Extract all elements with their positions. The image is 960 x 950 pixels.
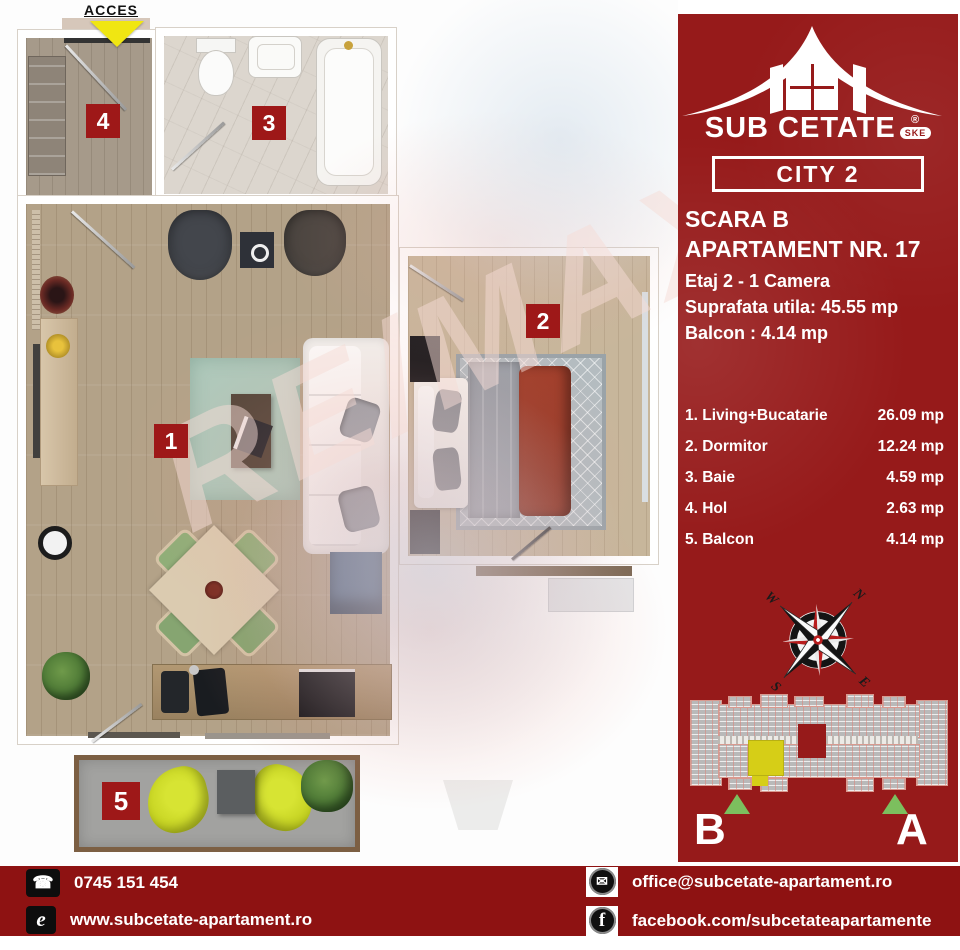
kitchen-faucet <box>189 665 199 675</box>
phone-row[interactable]: ☎ 0745 151 454 <box>26 869 312 897</box>
bedroom-window-sill <box>476 566 632 576</box>
kitchen-island <box>330 552 382 614</box>
decor-gold <box>46 334 70 358</box>
balcony-plant <box>301 760 353 812</box>
logo-shutter-left <box>770 64 783 114</box>
registered-mark: ® <box>911 114 920 126</box>
contact-footer: ☎ 0745 151 454 e www.subcetate-apartamen… <box>0 866 960 936</box>
sink <box>248 36 302 78</box>
bathtub <box>316 38 382 186</box>
compass-rose-icon: N E S W <box>748 570 888 710</box>
balcony-table <box>217 770 255 814</box>
compass-w: W <box>762 588 782 609</box>
room-badge-balcon: 5 <box>102 782 140 820</box>
cooktop <box>299 669 355 717</box>
kitchen-sink <box>193 667 230 716</box>
email-icon: ✉ <box>586 867 618 897</box>
building-footprint: B A <box>690 694 946 862</box>
logo-city2-box: CITY 2 <box>712 156 924 192</box>
sofa <box>303 338 389 554</box>
ske-badge: SKE <box>900 127 932 139</box>
room-label: 3. Baie <box>685 469 735 487</box>
apartment-title: SCARA B APARTAMENT NR. 17 <box>685 204 921 264</box>
website-url: www.subcetate-apartament.ro <box>70 910 312 930</box>
room-badge-living: 1 <box>154 424 188 458</box>
room-area: 12.24 mp <box>878 438 944 456</box>
room-list-row: 1. Living+Bucatarie 26.09 mp <box>678 400 958 431</box>
coffee-table <box>231 394 271 468</box>
side-table <box>240 232 274 268</box>
exterior-ledge <box>548 578 634 612</box>
email-address: office@subcetate-apartament.ro <box>632 872 892 892</box>
entrance-letter-a: A <box>896 808 928 852</box>
balcony-chair <box>140 761 216 838</box>
tv <box>33 344 40 458</box>
compass-s: S <box>768 678 784 695</box>
logo-shutter-right <box>853 64 866 114</box>
room-list-row: 3. Baie 4.59 mp <box>678 462 958 493</box>
kitchen-sink <box>161 671 189 713</box>
facebook-url: facebook.com/subcetateapartamente <box>632 911 932 931</box>
plant <box>42 652 90 700</box>
browser-icon: e <box>26 906 56 934</box>
room-label: 2. Dormitor <box>685 438 768 456</box>
floor-plan: ACCES <box>0 0 678 866</box>
room-label: 1. Living+Bucatarie <box>685 407 828 425</box>
phone-number: 0745 151 454 <box>74 873 178 893</box>
room-area: 2.63 mp <box>886 500 944 518</box>
entrance-triangle-b <box>724 794 750 814</box>
pillow <box>432 447 462 491</box>
bed-base <box>414 378 468 508</box>
bed-blanket-red <box>519 366 571 516</box>
apartment-details: Etaj 2 - 1 Camera Suprafata utila: 45.55… <box>685 268 898 346</box>
contact-right-column: ✉ office@subcetate-apartament.ro f faceb… <box>586 866 932 936</box>
logo-name-text: SUB CETATE <box>705 112 896 145</box>
apartment-highlight <box>748 740 784 776</box>
detail-balcon: Balcon : 4.14 mp <box>685 320 898 346</box>
compass-n: N <box>850 585 869 604</box>
entrance-arrow-icon <box>90 21 144 47</box>
facebook-icon: f <box>586 906 618 936</box>
room-list-row: 5. Balcon 4.14 mp <box>678 524 958 555</box>
detail-suprafata: Suprafata utila: 45.55 mp <box>685 294 898 320</box>
facebook-row[interactable]: f facebook.com/subcetateapartamente <box>586 906 932 936</box>
entrance-letter-b: B <box>694 808 726 852</box>
table-bowl <box>205 581 223 599</box>
round-side-table <box>38 526 72 560</box>
room-list-row: 4. Hol 2.63 mp <box>678 493 958 524</box>
room-label: 4. Hol <box>685 500 727 518</box>
room-area: 4.59 mp <box>886 469 944 487</box>
room-living-bucatarie <box>26 204 390 736</box>
pillow <box>431 388 463 433</box>
room-badge-dormitor: 2 <box>526 304 560 338</box>
flyer-page: ACCES <box>0 0 960 950</box>
balcony-door-rail <box>205 733 330 739</box>
room-label: 5. Balcon <box>685 531 754 549</box>
tub-faucet <box>344 41 353 50</box>
room-badge-hol: 4 <box>86 104 120 138</box>
bed-duvet <box>468 362 520 518</box>
acces-label: ACCES <box>84 2 138 18</box>
detail-etaj: Etaj 2 - 1 Camera <box>685 268 898 294</box>
room-area-list: 1. Living+Bucatarie 26.09 mp 2. Dormitor… <box>678 400 958 555</box>
nightstand <box>410 510 440 554</box>
armchair <box>284 210 346 276</box>
contact-left-column: ☎ 0745 151 454 e www.subcetate-apartamen… <box>26 866 312 936</box>
room-area: 4.14 mp <box>886 531 944 549</box>
phone-icon: ☎ <box>26 869 60 897</box>
apartament-label: APARTAMENT NR. 17 <box>685 234 921 264</box>
compass-e: E <box>855 672 873 690</box>
room-badge-baie: 3 <box>252 106 286 140</box>
balloon-basket-watermark <box>443 780 513 830</box>
nightstand <box>410 336 440 382</box>
bedroom-window <box>642 292 648 502</box>
room-list-row: 2. Dormitor 12.24 mp <box>678 431 958 462</box>
info-sidebar: SUB CETATE ® SKE CITY 2 SCARA B APARTAME… <box>678 14 958 862</box>
scara-label: SCARA B <box>685 204 921 234</box>
logo-marks: ® SKE <box>900 112 932 139</box>
toilet <box>198 50 234 96</box>
room-dormitor <box>408 256 650 556</box>
logo-name: SUB CETATE ® SKE <box>678 112 958 145</box>
website-row[interactable]: e www.subcetate-apartament.ro <box>26 906 312 934</box>
email-row[interactable]: ✉ office@subcetate-apartament.ro <box>586 867 932 897</box>
kitchen-counter <box>152 664 392 720</box>
apartment-highlight-tab <box>752 776 768 786</box>
curtain-fringe <box>32 210 40 330</box>
armchair <box>168 210 232 280</box>
decor-vase <box>40 276 74 314</box>
wardrobe <box>28 56 66 176</box>
room-area: 26.09 mp <box>878 407 944 425</box>
